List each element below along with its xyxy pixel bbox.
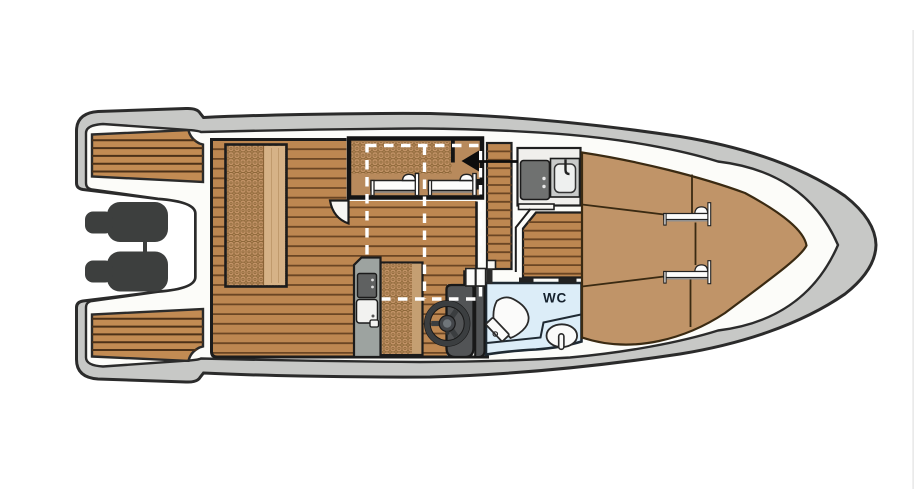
svg-text:WC: WC	[543, 291, 567, 306]
